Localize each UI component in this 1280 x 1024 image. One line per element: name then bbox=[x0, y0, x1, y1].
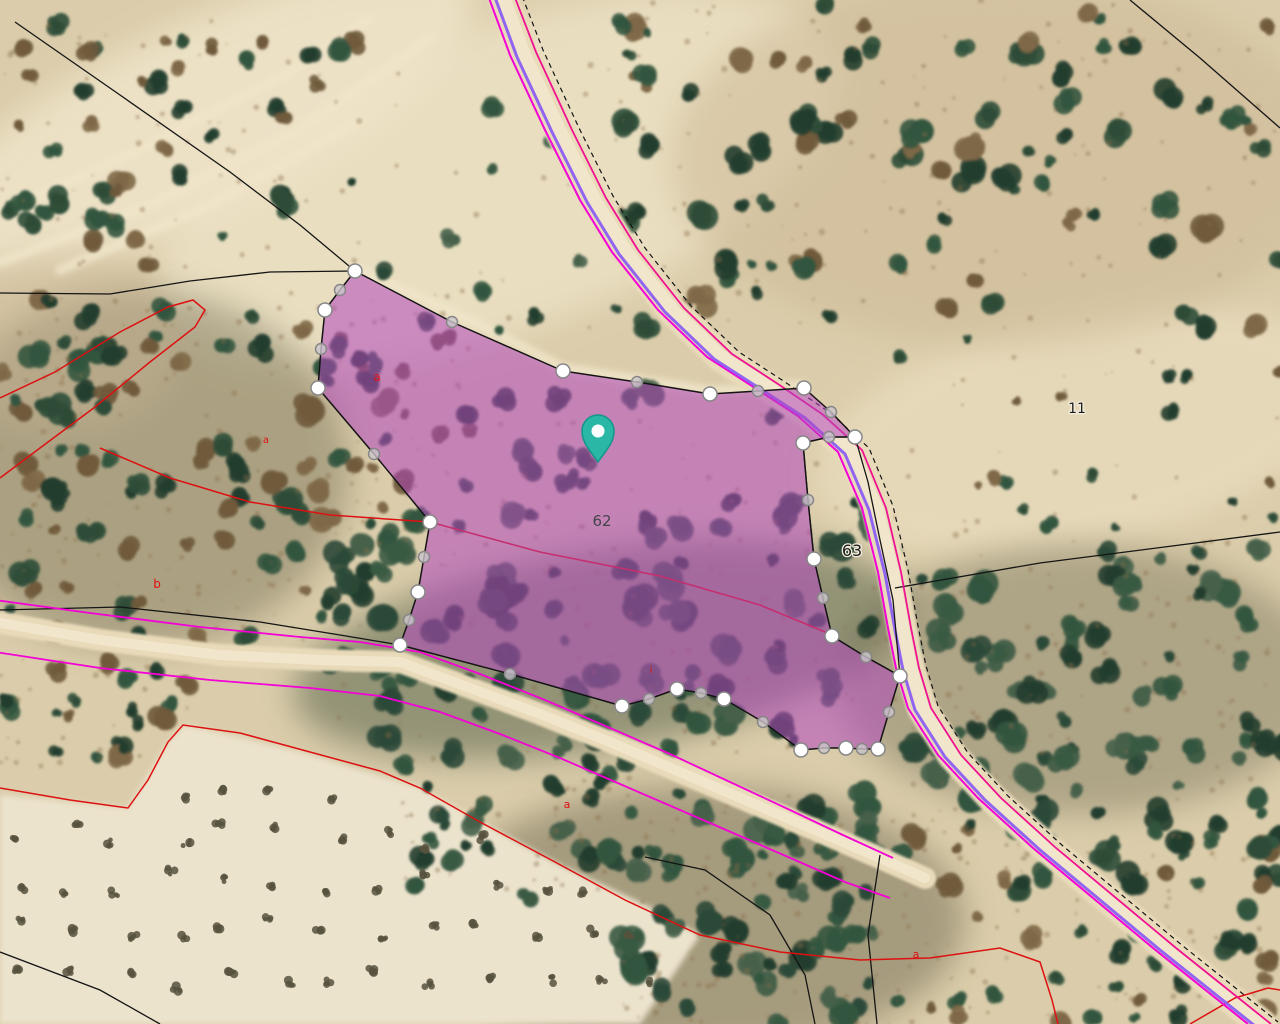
vertex-handle-white-36[interactable] bbox=[311, 381, 325, 395]
parcel-11-label: 11 bbox=[1068, 401, 1086, 417]
vertex-handle-gray-39[interactable] bbox=[335, 285, 346, 296]
vertex-handle-gray-15[interactable] bbox=[861, 652, 872, 663]
parcel-63-label: 63 bbox=[842, 541, 862, 560]
vertex-handle-white-12[interactable] bbox=[807, 552, 821, 566]
vertex-handle-white-6[interactable] bbox=[797, 381, 811, 395]
vertex-handle-gray-3[interactable] bbox=[632, 377, 643, 388]
vertex-handle-white-22[interactable] bbox=[794, 743, 808, 757]
vertex-handle-gray-21[interactable] bbox=[819, 743, 830, 754]
vertex-handle-white-34[interactable] bbox=[423, 515, 437, 529]
vertex-handle-white-20[interactable] bbox=[839, 741, 853, 755]
vertex-handle-white-28[interactable] bbox=[615, 699, 629, 713]
vertex-handle-white-10[interactable] bbox=[796, 436, 810, 450]
vertex-handle-gray-31[interactable] bbox=[404, 615, 415, 626]
vertex-handle-gray-17[interactable] bbox=[884, 707, 895, 718]
vertex-handle-white-4[interactable] bbox=[703, 387, 717, 401]
vertex-handle-gray-33[interactable] bbox=[419, 552, 430, 563]
vertex-handle-white-0[interactable] bbox=[348, 264, 362, 278]
vertex-handle-gray-23[interactable] bbox=[758, 717, 769, 728]
map-canvas[interactable]: 626311aabiaa bbox=[0, 0, 1280, 1024]
vertex-handle-gray-7[interactable] bbox=[826, 407, 837, 418]
vertex-handle-gray-5[interactable] bbox=[753, 386, 764, 397]
vertex-handle-white-2[interactable] bbox=[556, 364, 570, 378]
vertex-handle-white-18[interactable] bbox=[871, 742, 885, 756]
vertex-handle-white-24[interactable] bbox=[717, 692, 731, 706]
vertex-handle-gray-1[interactable] bbox=[447, 317, 458, 328]
vertex-handle-white-32[interactable] bbox=[411, 585, 425, 599]
subparcel-letter-label-0: a bbox=[373, 370, 380, 384]
vertex-handle-white-30[interactable] bbox=[393, 638, 407, 652]
vertex-handle-gray-11[interactable] bbox=[803, 495, 814, 506]
subparcel-letter-label-1: a bbox=[263, 435, 269, 446]
map-viewport[interactable]: 626311aabiaa bbox=[0, 0, 1280, 1024]
vertex-handle-gray-19[interactable] bbox=[857, 744, 868, 755]
vertex-handle-white-26[interactable] bbox=[670, 682, 684, 696]
vertex-handle-gray-37[interactable] bbox=[316, 344, 327, 355]
vertex-handle-gray-9[interactable] bbox=[824, 432, 835, 443]
subparcel-letter-label-3: i bbox=[650, 665, 653, 676]
subparcel-letter-label-2: b bbox=[153, 577, 161, 591]
vertex-handle-gray-13[interactable] bbox=[818, 593, 829, 604]
subparcel-letter-label-4: a bbox=[564, 798, 571, 811]
subparcel-letter-label-5: a bbox=[913, 948, 920, 961]
vertex-handle-white-14[interactable] bbox=[825, 629, 839, 643]
vertex-handle-gray-29[interactable] bbox=[505, 669, 516, 680]
vertex-handle-white-38[interactable] bbox=[318, 303, 332, 317]
parcel-62-label: 62 bbox=[592, 512, 611, 530]
vertex-handle-white-16[interactable] bbox=[893, 669, 907, 683]
vertex-handle-gray-35[interactable] bbox=[369, 449, 380, 460]
vertex-handle-white-8[interactable] bbox=[848, 430, 862, 444]
vertex-handle-gray-25[interactable] bbox=[696, 688, 707, 699]
vertex-handle-gray-27[interactable] bbox=[644, 694, 655, 705]
pin-center-dot bbox=[592, 425, 605, 438]
